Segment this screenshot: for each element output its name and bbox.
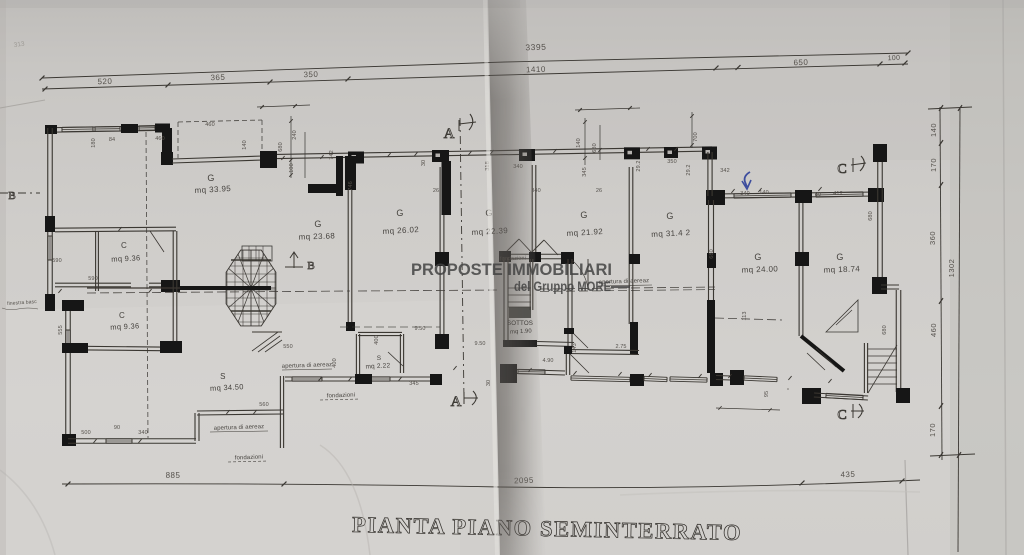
svg-text:113: 113	[742, 311, 748, 320]
svg-text:84: 84	[109, 137, 115, 143]
svg-text:9.50: 9.50	[414, 326, 425, 332]
svg-text:460: 460	[929, 323, 938, 337]
svg-text:C: C	[837, 408, 846, 423]
svg-text:170: 170	[928, 423, 937, 437]
svg-text:680: 680	[882, 325, 888, 334]
svg-text:fondazioni: fondazioni	[235, 455, 264, 462]
svg-text:2.75: 2.75	[615, 344, 626, 350]
svg-text:°: °	[787, 388, 789, 394]
svg-text:G: G	[666, 211, 673, 221]
svg-text:4.90: 4.90	[542, 358, 553, 364]
svg-text:365: 365	[210, 73, 225, 83]
svg-text:140: 140	[759, 190, 768, 196]
svg-text:140: 140	[576, 138, 582, 147]
svg-text:345: 345	[409, 381, 418, 387]
svg-text:C: C	[837, 162, 846, 177]
svg-text:G: G	[580, 210, 587, 220]
svg-text:mq 9.36: mq 9.36	[111, 253, 141, 264]
svg-text:mq 33.95: mq 33.95	[194, 184, 231, 195]
svg-text:412: 412	[833, 191, 842, 197]
svg-text:1410: 1410	[526, 65, 546, 75]
svg-text:590: 590	[52, 258, 61, 264]
svg-text:400: 400	[332, 358, 338, 367]
svg-text:180: 180	[91, 138, 97, 147]
svg-text:340: 340	[740, 191, 749, 197]
svg-text:100: 100	[888, 55, 901, 62]
svg-text:3395: 3395	[525, 42, 546, 53]
svg-text:555: 555	[58, 325, 64, 334]
svg-text:342: 342	[720, 168, 729, 174]
svg-text:590: 590	[88, 276, 97, 282]
svg-text:460: 460	[155, 136, 164, 142]
svg-text:746: 746	[348, 181, 354, 190]
svg-text:C: C	[119, 311, 125, 320]
svg-text:560: 560	[259, 402, 268, 408]
svg-text:680: 680	[278, 142, 284, 151]
svg-text:S: S	[220, 372, 226, 381]
svg-text:mq 9.36: mq 9.36	[110, 321, 140, 332]
svg-text:mq 2.22: mq 2.22	[365, 362, 390, 370]
svg-text:520: 520	[97, 77, 112, 87]
svg-text:G: G	[207, 173, 214, 183]
svg-text:S: S	[377, 355, 382, 362]
svg-text:30: 30	[421, 160, 427, 166]
svg-text:9.50: 9.50	[474, 341, 485, 347]
svg-text:fondazioni: fondazioni	[327, 393, 356, 400]
svg-text:500: 500	[81, 430, 90, 436]
svg-text:26: 26	[596, 188, 602, 194]
svg-text:742: 742	[329, 150, 335, 159]
svg-text:360: 360	[928, 231, 937, 245]
svg-text:550: 550	[283, 344, 292, 350]
svg-text:B: B	[8, 190, 15, 202]
svg-text:G: G	[836, 252, 843, 262]
svg-text:1302: 1302	[947, 259, 956, 278]
svg-text:680: 680	[592, 143, 598, 152]
svg-text:B: B	[307, 260, 314, 272]
svg-text:90: 90	[114, 425, 120, 431]
svg-text:G: G	[754, 252, 761, 262]
svg-text:240: 240	[292, 130, 298, 139]
svg-text:mq 21.92: mq 21.92	[566, 227, 603, 238]
svg-text:mq 23.68: mq 23.68	[298, 231, 335, 241]
svg-text:340: 340	[138, 430, 147, 436]
svg-text:30: 30	[486, 380, 492, 386]
svg-text:80: 80	[815, 192, 821, 198]
svg-text:26: 26	[433, 188, 439, 194]
svg-text:A: A	[444, 126, 455, 142]
svg-text:885: 885	[166, 471, 181, 480]
svg-text:350: 350	[303, 70, 318, 80]
svg-text:100: 100	[289, 163, 295, 172]
svg-text:140: 140	[242, 140, 248, 149]
svg-text:mq 18.74: mq 18.74	[823, 264, 860, 274]
svg-text:680: 680	[868, 211, 874, 220]
svg-text:650: 650	[793, 58, 808, 68]
svg-text:460: 460	[205, 122, 214, 128]
svg-text:143: 143	[572, 343, 578, 352]
svg-text:95: 95	[764, 391, 770, 397]
svg-text:350: 350	[667, 159, 676, 165]
svg-text:140: 140	[929, 123, 938, 137]
svg-text:435: 435	[840, 470, 855, 480]
svg-text:del Gruppo MORE: del Gruppo MORE	[514, 279, 611, 294]
svg-text:170: 170	[929, 158, 938, 172]
svg-text:345: 345	[582, 167, 588, 176]
svg-text:PROPOSTE IMMOBILIARI: PROPOSTE IMMOBILIARI	[411, 261, 612, 279]
svg-text:mq 34.50: mq 34.50	[210, 382, 244, 393]
svg-text:G: G	[314, 219, 321, 229]
svg-text:29.2: 29.2	[686, 164, 692, 175]
svg-text:29.2: 29.2	[636, 160, 642, 171]
svg-text:680: 680	[709, 249, 715, 258]
svg-text:700: 700	[693, 132, 699, 141]
svg-text:mq 26.02: mq 26.02	[382, 225, 419, 236]
svg-text:400: 400	[374, 335, 380, 344]
svg-text:G: G	[396, 208, 403, 218]
svg-text:C: C	[121, 241, 127, 250]
svg-text:A: A	[451, 394, 462, 410]
svg-text:mq 24.00: mq 24.00	[741, 264, 778, 274]
